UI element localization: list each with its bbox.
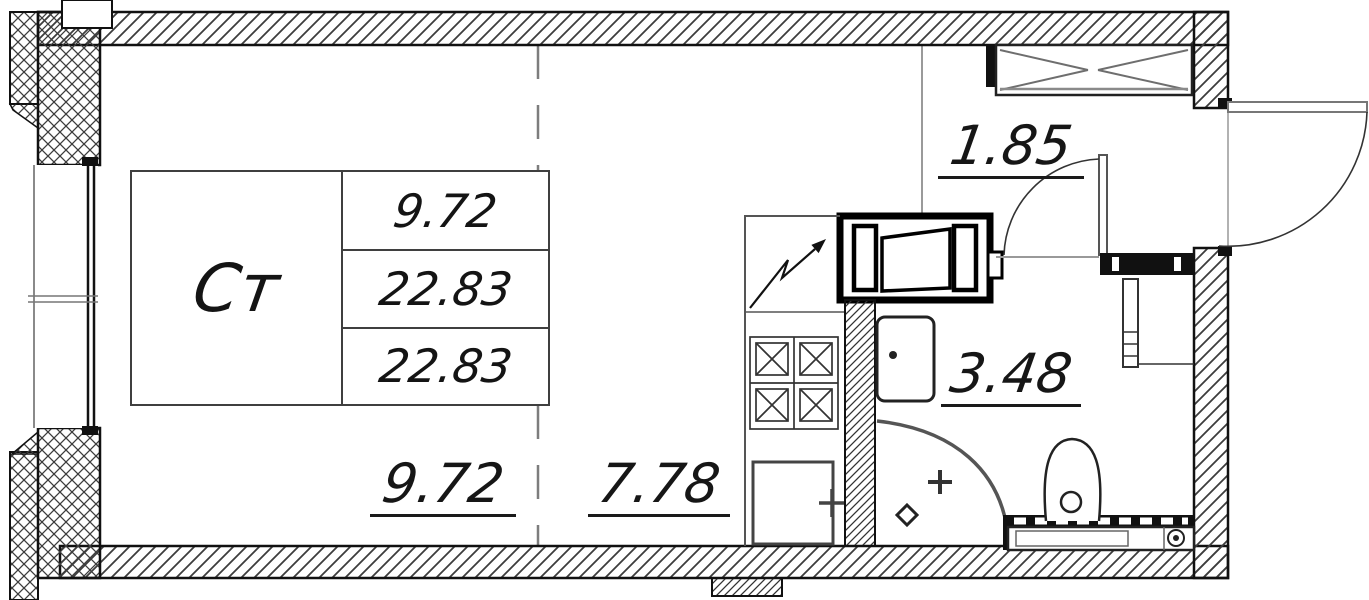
wall-left-upper-cut [10,104,38,128]
window [28,157,98,435]
kitchen-counter [745,216,845,546]
vent-shaft-center-duct [882,229,950,291]
floor-plan: Ст 9.72 22.83 22.83 1.85 3.48 9.72 7.78 [0,0,1369,600]
electric-connection-arrow [750,239,826,308]
sink-tap-dot [889,351,897,359]
dimension-label-bathroom: 3.48 [941,346,1081,407]
bathroom-sink [877,317,934,401]
window-top-cap [82,157,98,166]
room-info-table: Ст 9.72 22.83 22.83 [130,170,550,406]
entrance-door [1218,98,1367,256]
wall-right-upper [1194,12,1228,108]
dimension-label-kitchen: 7.78 [588,456,730,517]
wall-left-upper-pier [38,12,100,165]
vent-shaft-side-notch [988,252,1002,278]
wall-top-left-ledge [62,0,112,28]
room-type-label: Ст [188,250,285,327]
towel-rail [1123,279,1194,367]
entrance-door-swing-arc [1219,112,1367,246]
wall-right-lower [1194,248,1228,578]
shower [877,421,1009,546]
wall-bottom-pilaster [712,578,782,596]
room-area-row-3: 22.83 [343,327,548,404]
toilet [1045,439,1101,521]
room-area-row-2: 22.83 [343,249,548,326]
wall-top [38,12,1228,45]
wall-left-lower-outer-strip [10,452,38,600]
dimension-label-hallway: 1.85 [938,118,1084,179]
wall-left-lower-cut [12,432,38,454]
entrance-jamb-cap-bottom [1218,246,1232,256]
wardrobe [986,45,1192,95]
shower-drain-icon [897,505,917,525]
toilet-flush-icon [1061,492,1081,512]
kitchen-sink [753,462,845,544]
duct-box-slit-2 [1174,257,1181,271]
wardrobe-outline [996,45,1192,95]
wall-left-lower-pier [38,428,100,578]
vent-shaft-left-duct [854,226,876,290]
wall-kitchen-bathroom [845,300,875,546]
room-area-row-1: 9.72 [343,172,548,249]
vent-shaft-right-duct [954,226,976,290]
wardrobe-wall-stub [986,45,996,87]
vent-shaft [840,216,1002,300]
stove-burners [750,337,838,429]
dimension-label-living: 9.72 [370,456,516,517]
window-bottom-cap [82,426,98,435]
room-type-cell: Ст [132,172,343,404]
entrance-door-leaf [1228,102,1367,112]
duct-box-slit-1 [1112,257,1119,271]
bathroom-door-leaf [1099,155,1107,255]
shower-mixer-icon [928,470,952,494]
wall-left-upper-outer-strip [10,12,38,104]
